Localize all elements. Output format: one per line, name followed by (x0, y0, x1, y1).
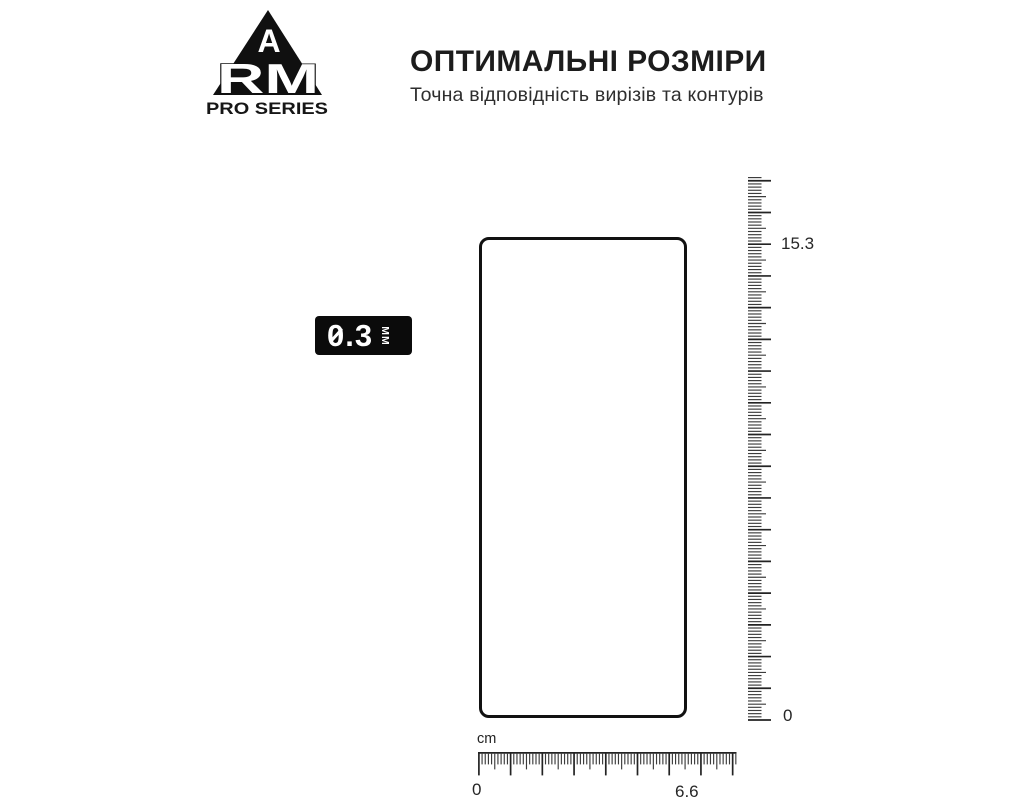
cm-unit-label: cm (477, 731, 496, 747)
height-value-label: 15.3 (781, 234, 814, 254)
horizontal-ruler (478, 752, 740, 778)
product-infographic: A RM PRO SERIES ОПТИМАЛЬНІ РОЗМІРИ Точна… (0, 0, 1024, 800)
logo-series-label: PRO SERIES (206, 99, 328, 118)
vertical-zero-label: 0 (783, 706, 792, 726)
thickness-badge: 0.3 ММ (315, 316, 412, 355)
logo-letter-a: A (257, 23, 280, 59)
screen-protector-outline (479, 237, 687, 718)
page-subtitle: Точна відповідність вирізів та контурів (410, 84, 767, 107)
logo-letters-rm: RM (217, 55, 319, 102)
vertical-ruler (748, 174, 774, 724)
thickness-unit: ММ (379, 326, 391, 346)
arm-pro-series-logo: A RM PRO SERIES (203, 6, 331, 118)
horizontal-zero-label: 0 (472, 780, 481, 800)
header: ОПТИМАЛЬНІ РОЗМІРИ Точна відповідність в… (410, 46, 767, 107)
width-value-label: 6.6 (675, 782, 699, 800)
page-title: ОПТИМАЛЬНІ РОЗМІРИ (410, 46, 767, 78)
